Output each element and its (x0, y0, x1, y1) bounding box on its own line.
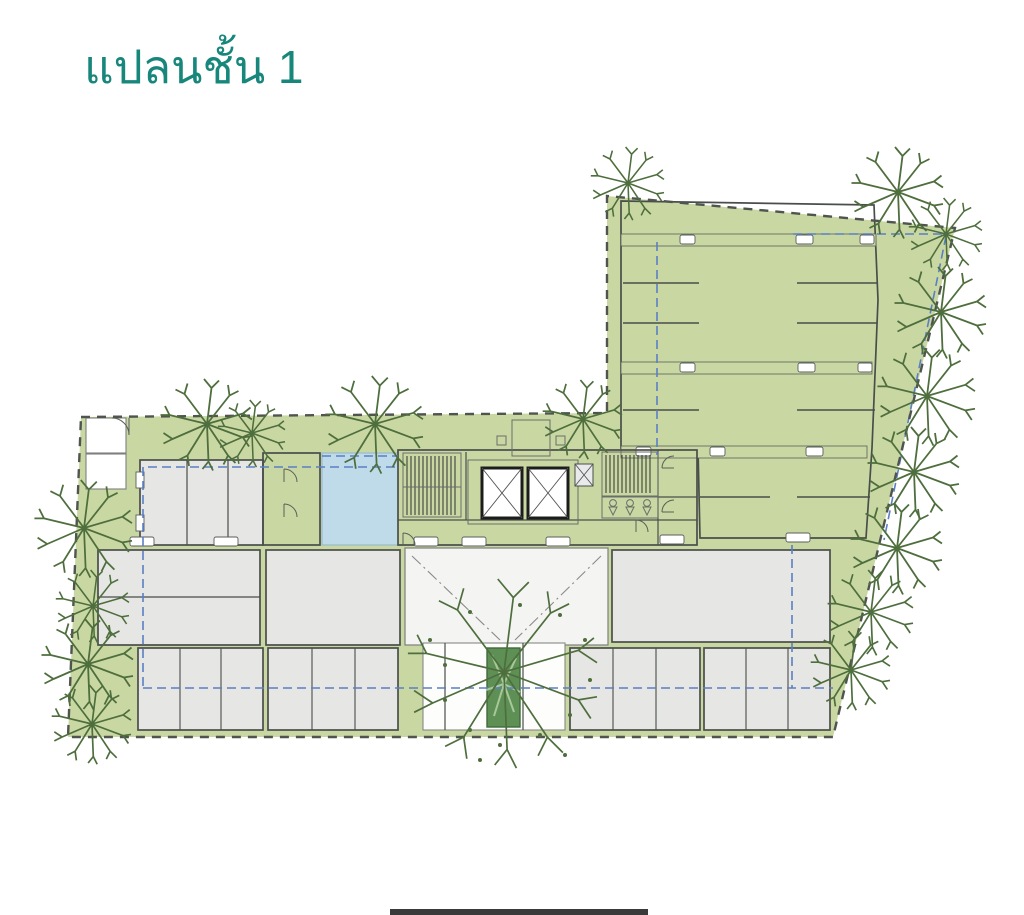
drop-off-canopy (405, 548, 608, 645)
carport-group (138, 648, 263, 730)
unit-room (266, 550, 400, 645)
unit-rooms (98, 548, 830, 645)
elevator-bank (468, 460, 578, 524)
visitor-parking-spaces (86, 418, 126, 489)
service-shaft (575, 464, 593, 486)
floor-plan-page: แปลนชั้น 1 (0, 0, 1024, 915)
carport-group (268, 648, 398, 730)
carport-stalls (138, 643, 830, 730)
unit-room (612, 550, 830, 642)
staircase-east (602, 452, 658, 496)
floor-plan-drawing (0, 0, 1024, 915)
carport-group (704, 648, 830, 730)
storage-units-west (136, 460, 263, 545)
bottom-edge-artifact (390, 909, 648, 915)
